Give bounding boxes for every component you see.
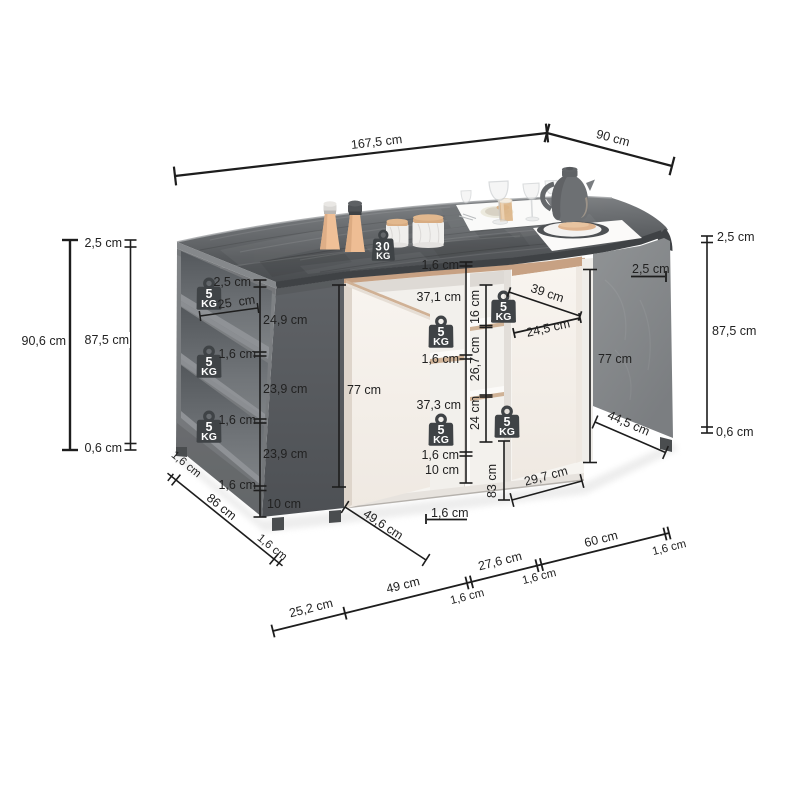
svg-text:2,5 cm: 2,5 cm (213, 275, 251, 289)
svg-text:1,6 cm: 1,6 cm (218, 413, 256, 427)
svg-text:23,9 cm: 23,9 cm (263, 447, 307, 461)
svg-text:77 cm: 77 cm (598, 352, 632, 366)
svg-text:10 cm: 10 cm (267, 497, 301, 511)
svg-text:KG: KG (201, 431, 217, 443)
svg-text:24,9 cm: 24,9 cm (263, 313, 307, 327)
svg-text:1,6 cm: 1,6 cm (218, 347, 256, 361)
svg-text:1,6 cm: 1,6 cm (218, 478, 256, 492)
svg-text:1,6 cm: 1,6 cm (421, 448, 459, 462)
svg-text:2,5 cm: 2,5 cm (632, 262, 670, 276)
svg-text:83 cm: 83 cm (485, 464, 499, 498)
svg-text:10 cm: 10 cm (425, 463, 459, 477)
svg-text:26,7 cm: 26,7 cm (468, 337, 482, 381)
svg-text:KG: KG (201, 298, 217, 310)
svg-text:KG: KG (499, 426, 515, 438)
svg-text:37,3 cm: 37,3 cm (417, 398, 461, 412)
svg-text:77 cm: 77 cm (347, 383, 381, 397)
svg-text:KG: KG (376, 251, 390, 262)
svg-text:1,6 cm: 1,6 cm (421, 258, 459, 272)
svg-text:37,1 cm: 37,1 cm (417, 290, 461, 304)
svg-text:1,6 cm: 1,6 cm (421, 352, 459, 366)
svg-text:24 cm: 24 cm (468, 396, 482, 430)
svg-text:0,6 cm: 0,6 cm (84, 441, 122, 455)
svg-text:2,5 cm: 2,5 cm (717, 230, 755, 244)
svg-text:KG: KG (496, 311, 512, 323)
svg-text:KG: KG (433, 336, 449, 348)
svg-text:87,5 cm: 87,5 cm (712, 324, 756, 338)
svg-text:16 cm: 16 cm (468, 290, 482, 324)
svg-text:87,5 cm: 87,5 cm (85, 333, 129, 347)
svg-text:0,6 cm: 0,6 cm (716, 425, 754, 439)
svg-text:90,6 cm: 90,6 cm (22, 334, 66, 348)
svg-text:2,5 cm: 2,5 cm (84, 236, 122, 250)
svg-text:KG: KG (201, 366, 217, 378)
svg-text:KG: KG (433, 434, 449, 446)
svg-text:1,6 cm: 1,6 cm (431, 506, 469, 520)
svg-text:23,9 cm: 23,9 cm (263, 382, 307, 396)
